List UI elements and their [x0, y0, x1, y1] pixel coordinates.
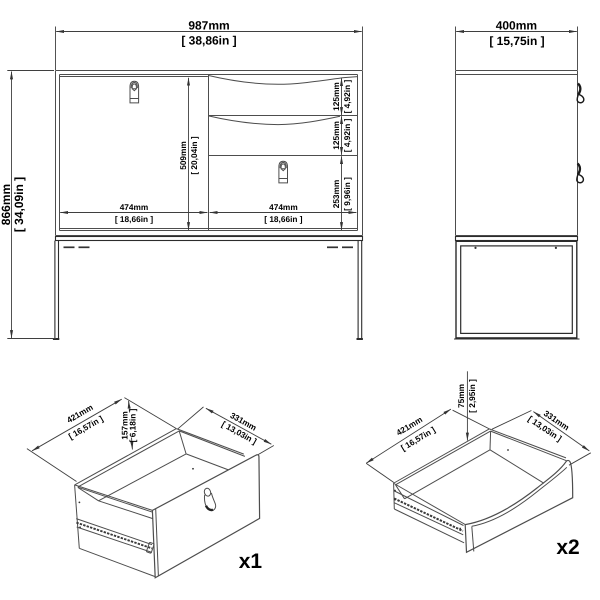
svg-text:509mm: 509mm	[178, 141, 188, 170]
svg-text:987mm: 987mm	[188, 19, 229, 33]
svg-text:x2: x2	[556, 536, 579, 559]
svg-text:866mm: 866mm	[0, 184, 13, 225]
svg-text:400mm: 400mm	[496, 19, 537, 33]
svg-text:[ 4,92in ]: [ 4,92in ]	[342, 118, 352, 152]
svg-text:[ 34,09in ]: [ 34,09in ]	[12, 177, 26, 232]
svg-text:[ 18,66in ]: [ 18,66in ]	[115, 214, 154, 224]
svg-text:474mm: 474mm	[120, 202, 149, 212]
svg-text:[ 6,18in ]: [ 6,18in ]	[127, 408, 137, 442]
svg-text:474mm: 474mm	[269, 202, 298, 212]
svg-text:[ 15,75in ]: [ 15,75in ]	[489, 34, 544, 48]
svg-text:75mm: 75mm	[456, 384, 466, 408]
svg-text:[ 18,66in ]: [ 18,66in ]	[264, 214, 303, 224]
svg-text:x1: x1	[239, 550, 263, 573]
svg-text:[ 20,04in ]: [ 20,04in ]	[189, 136, 199, 175]
svg-text:[ 9,96in ]: [ 9,96in ]	[342, 177, 352, 211]
svg-text:[ 38,86in ]: [ 38,86in ]	[181, 34, 236, 48]
svg-text:125mm: 125mm	[331, 82, 341, 111]
svg-text:[ 2,95in ]: [ 2,95in ]	[467, 379, 477, 413]
svg-text:[ 4,92in ]: [ 4,92in ]	[342, 80, 352, 114]
svg-text:125mm: 125mm	[331, 121, 341, 150]
svg-text:253mm: 253mm	[331, 180, 341, 209]
